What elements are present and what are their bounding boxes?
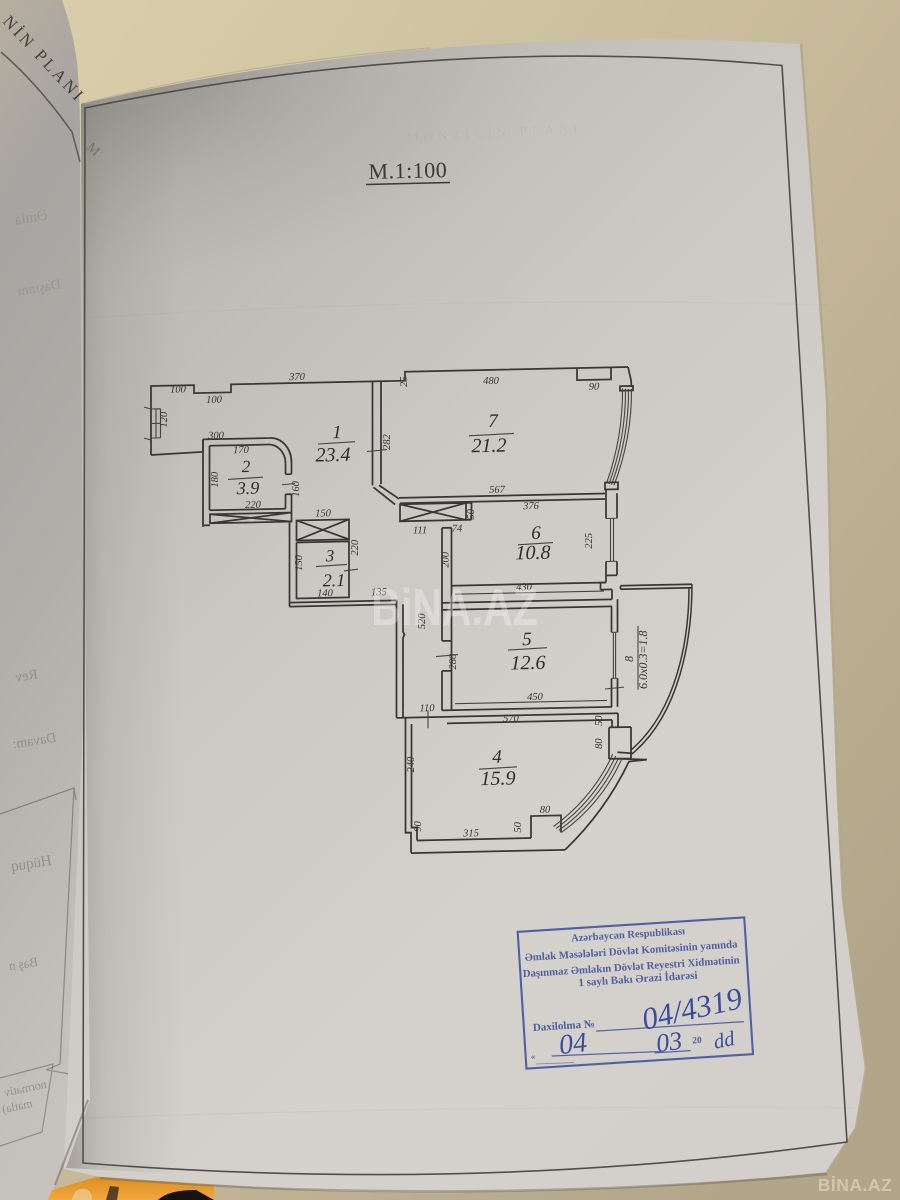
svg-text:6: 6 — [531, 523, 541, 544]
svg-text:M.1:100: M.1:100 — [368, 157, 447, 184]
svg-text:BİNA.AZ: BİNA.AZ — [818, 1175, 892, 1195]
svg-text:6.0x0.3=1.8: 6.0x0.3=1.8 — [636, 630, 650, 689]
svg-text:3: 3 — [325, 546, 334, 565]
svg-text:370: 370 — [288, 372, 305, 383]
svg-text:21.2: 21.2 — [472, 435, 507, 458]
svg-text:90: 90 — [413, 820, 424, 831]
svg-text:220: 220 — [350, 539, 361, 556]
svg-text:1: 1 — [332, 422, 341, 443]
svg-text:50: 50 — [594, 715, 605, 726]
svg-text:110: 110 — [420, 703, 436, 714]
svg-text:280: 280 — [448, 653, 459, 670]
svg-text:BiNA.AZ: BiNA.AZ — [371, 578, 538, 636]
svg-text:570: 570 — [503, 713, 519, 724]
svg-text:15.9: 15.9 — [481, 767, 516, 790]
svg-text:100: 100 — [206, 395, 222, 406]
svg-text:7: 7 — [488, 411, 499, 432]
svg-text:90: 90 — [589, 382, 600, 393]
svg-text:376: 376 — [522, 501, 539, 512]
svg-text:140: 140 — [317, 588, 333, 599]
svg-text:450: 450 — [527, 692, 543, 703]
svg-text:240: 240 — [406, 756, 417, 773]
svg-text:80: 80 — [594, 738, 605, 749]
svg-text:20: 20 — [692, 1036, 702, 1047]
svg-text:170: 170 — [233, 445, 249, 456]
svg-text:567: 567 — [489, 485, 505, 496]
svg-text:8: 8 — [622, 656, 636, 662]
svg-text:220: 220 — [245, 500, 261, 511]
svg-text:12.6: 12.6 — [511, 652, 546, 675]
svg-text:50: 50 — [513, 821, 524, 832]
svg-text:10.8: 10.8 — [516, 542, 551, 565]
svg-text:480: 480 — [483, 376, 499, 387]
svg-text:225: 225 — [584, 533, 595, 549]
svg-text:2.1: 2.1 — [323, 570, 345, 590]
svg-text:74: 74 — [452, 523, 463, 534]
svg-text:180: 180 — [210, 471, 221, 488]
svg-text:23.4: 23.4 — [316, 444, 351, 467]
svg-text:Rev: Rev — [14, 668, 38, 686]
svg-text:282: 282 — [382, 433, 393, 450]
svg-text:4: 4 — [492, 747, 502, 768]
svg-text:3.9: 3.9 — [236, 478, 259, 498]
svg-text:160: 160 — [291, 480, 302, 497]
svg-text:100: 100 — [170, 384, 186, 395]
svg-text:111: 111 — [413, 525, 427, 536]
svg-text:150: 150 — [294, 554, 305, 571]
svg-text:2: 2 — [242, 457, 251, 476]
svg-text:120: 120 — [159, 411, 170, 428]
svg-text:80: 80 — [540, 805, 551, 816]
svg-text:25: 25 — [399, 376, 410, 387]
svg-text:50: 50 — [466, 508, 477, 519]
svg-text:200: 200 — [441, 551, 452, 568]
svg-text:315: 315 — [462, 828, 479, 839]
svg-text:150: 150 — [315, 508, 331, 519]
